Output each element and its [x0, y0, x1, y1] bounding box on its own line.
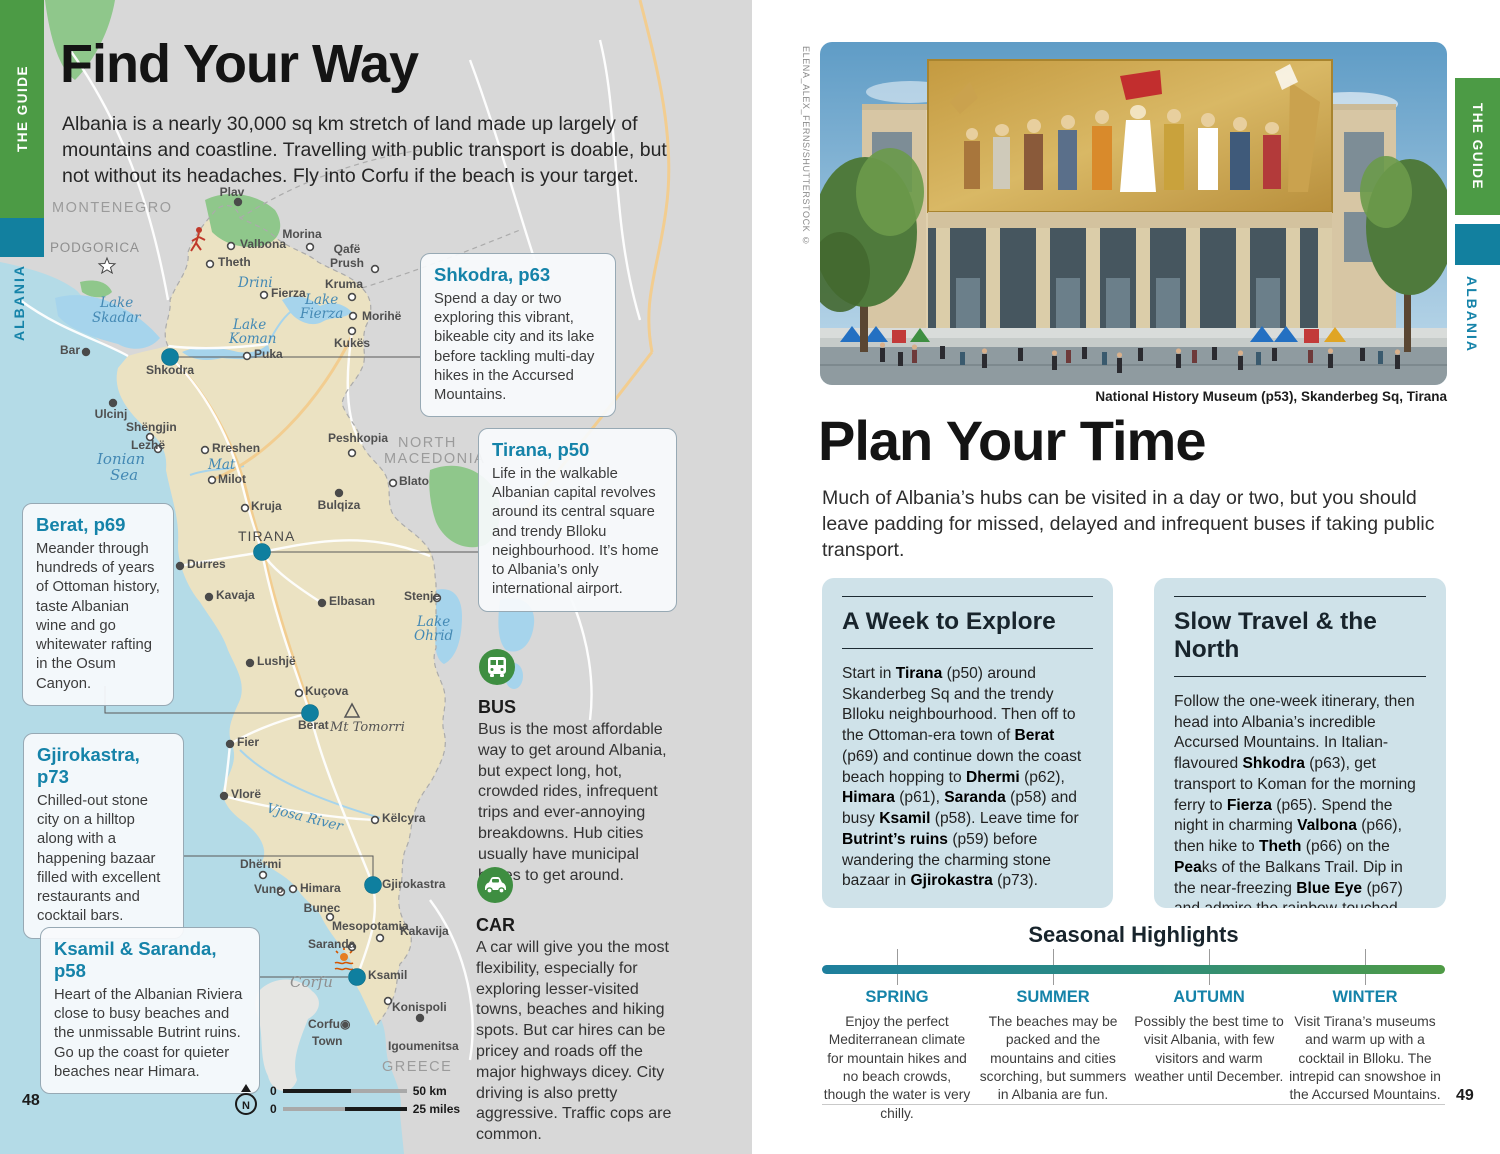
footer-rule [822, 1104, 1445, 1105]
callout-berat: Berat, p69 Meander through hundreds of y… [22, 503, 174, 706]
city-dot [220, 792, 228, 800]
page-title-left: Find Your Way [60, 33, 418, 95]
map-label: Town [312, 1034, 342, 1048]
plan-box-title: Slow Travel & the North [1174, 608, 1426, 664]
guidebook-spread: MONTENEGROPODGORICANORTHMACEDONIAGREECET… [0, 0, 1500, 1154]
season-winter: WINTER Visit Tirana’s museums and warm u… [1289, 988, 1441, 1105]
map-label: Elbasan [329, 594, 375, 608]
callout-title: Tirana, p50 [492, 439, 663, 461]
town-ring [207, 261, 214, 268]
map-label: Milot [218, 472, 246, 486]
map-label: Puka [254, 347, 283, 361]
town-ring [290, 886, 297, 893]
map-label: Qafë [334, 242, 361, 256]
city-dot [109, 399, 117, 407]
town-ring [261, 292, 268, 299]
map-label: GREECE [382, 1059, 452, 1075]
map-label: Igoumenitsa [388, 1039, 459, 1053]
map-label: PODGORICA [50, 240, 140, 255]
map-label: Theth [218, 255, 251, 269]
map-label: Kukës [334, 336, 370, 350]
map-label: Kruja [251, 499, 282, 513]
bus-icon [478, 648, 516, 686]
map-label: Kavaja [216, 588, 255, 602]
callout-gjirokastra: Gjirokastra, p73 Chilled-out stone city … [23, 733, 184, 939]
rule [1174, 676, 1426, 677]
map-label: Kakavija [400, 924, 449, 938]
scale-miles-row: 025 miles [270, 1102, 460, 1116]
city-dot [82, 348, 90, 356]
town-ring [390, 480, 397, 487]
map-label: Fier [237, 735, 259, 749]
callout-tirana: Tirana, p50 Life in the walkable Albania… [478, 428, 677, 612]
photo-credit: ELENA_ALEX_FERNS/SHUTTERSTOCK © [801, 46, 815, 296]
map-label: Koman [228, 331, 276, 347]
callout-title: Ksamil & Saranda, p58 [54, 938, 246, 982]
seasonal-highlights-title: Seasonal Highlights [822, 922, 1445, 948]
city-dot [416, 1014, 424, 1022]
town-ring [242, 505, 249, 512]
town-ring [372, 266, 379, 273]
map-label: Dhërmi [240, 857, 281, 871]
left-teal-band [0, 218, 44, 257]
season-autumn: AUTUMN Possibly the best time to visit A… [1133, 988, 1285, 1086]
page-intro-left: Albania is a nearly 30,000 sq km stretch… [62, 112, 696, 190]
callout-title: Shkodra, p63 [434, 264, 602, 286]
callout-title: Berat, p69 [36, 514, 160, 536]
season-spring: SPRING Enjoy the perfect Mediterranean c… [821, 988, 973, 1123]
tab-the-guide-left: THE GUIDE [0, 0, 44, 218]
city-dot-major [365, 877, 382, 894]
map-label: Rreshen [212, 441, 260, 455]
map-label: Vlorë [231, 787, 261, 801]
museum-photo-illustration [820, 42, 1447, 385]
town-ring [377, 935, 384, 942]
map-label: Valbona [240, 237, 286, 251]
map-label: Shkodra [146, 363, 194, 377]
map-label: Kuçova [305, 684, 349, 698]
map-label: MACEDONIA [384, 451, 485, 467]
map-label: Gjirokastra [382, 877, 446, 891]
town-ring [349, 450, 356, 457]
map-scale-bar: N 050 km 025 miles [231, 1083, 460, 1117]
transport-title: CAR [476, 915, 684, 936]
map-label: Lushjë [257, 654, 296, 668]
rule [842, 596, 1093, 597]
callout-body: Chilled-out stone city on a hilltop alon… [37, 792, 170, 927]
car-icon [476, 866, 514, 904]
map-label: Sea [110, 466, 138, 484]
town-ring [209, 477, 216, 484]
city-dot [335, 489, 343, 497]
map-label: Saranda [308, 937, 356, 951]
plan-box-week: A Week to Explore Start in Tirana (p50) … [822, 578, 1113, 908]
transport-car: CAR A car will give you the most flexibi… [476, 866, 684, 1146]
map-label: Ksamil [368, 968, 407, 982]
museum-photo [820, 42, 1447, 385]
map-label: Lake [99, 295, 133, 311]
map-label: Bunec [304, 901, 341, 915]
map-label: Kruma [325, 277, 363, 291]
season-summer: SUMMER The beaches may be packed and the… [977, 988, 1129, 1105]
town-ring [349, 328, 356, 335]
map-label: Mat [207, 457, 236, 473]
map-label: Berat [298, 718, 329, 732]
map-label: TIRANA [238, 528, 295, 544]
map-label: Corfu◉ [308, 1017, 351, 1031]
town-ring [307, 244, 314, 251]
map-label: Konispoli [392, 1000, 447, 1014]
callout-body: Meander through hundreds of years of Ott… [36, 540, 160, 694]
plan-box-title: A Week to Explore [842, 608, 1093, 636]
map-label: Shëngjin [126, 420, 177, 434]
city-dot [246, 659, 254, 667]
page-intro-right: Much of Albania’s hubs can be visited in… [822, 486, 1450, 564]
city-dot [226, 740, 234, 748]
callout-body: Life in the walkable Albanian capital re… [492, 465, 663, 600]
plan-box-body: Follow the one-week itinerary, then head… [1174, 692, 1426, 908]
rule [1174, 596, 1426, 597]
transport-body: Bus is the most affordable way to get ar… [478, 720, 686, 886]
map-label: Bulqiza [318, 498, 361, 512]
right-teal-band [1455, 224, 1500, 265]
tab-albania-right: ALBANIA [1464, 276, 1480, 386]
svg-text:N: N [242, 1100, 250, 1112]
photo-caption: National History Museum (p53), Skanderbe… [820, 389, 1447, 404]
town-ring [349, 294, 356, 301]
callout-ksamil-saranda: Ksamil & Saranda, p58 Heart of the Alban… [40, 927, 260, 1094]
rule [842, 648, 1093, 649]
city-dot-major [349, 969, 366, 986]
map-label: Ulcinj [95, 407, 128, 421]
town-ring [372, 817, 379, 824]
map-label: Morihë [362, 309, 402, 323]
town-ring [228, 243, 235, 250]
city-dot [234, 198, 242, 206]
map-label: Drini [237, 275, 273, 291]
transport-title: BUS [478, 697, 686, 718]
town-ring [296, 690, 303, 697]
city-dot [318, 599, 326, 607]
city-dot-major [254, 544, 271, 561]
callout-shkodra: Shkodra, p63 Spend a day or two explorin… [420, 253, 616, 417]
callout-title: Gjirokastra, p73 [37, 744, 170, 788]
city-dot [176, 562, 184, 570]
map-label: Vuno [254, 882, 284, 896]
season-gradient-bar [822, 965, 1445, 974]
city-dot [205, 593, 213, 601]
transport-bus: BUS Bus is the most affordable way to ge… [478, 648, 686, 886]
map-label: NORTH [398, 435, 457, 451]
town-ring [244, 353, 251, 360]
map-label: Blato [399, 474, 429, 488]
plan-box-body: Start in Tirana (p50) around Skanderbeg … [842, 664, 1093, 892]
town-ring [260, 872, 267, 879]
page-number-left: 48 [22, 1092, 40, 1110]
map-label: Corfu [290, 973, 333, 991]
map-label: Prush [330, 256, 364, 270]
map-label: Peshkopia [328, 431, 388, 445]
map-label: Durres [187, 557, 226, 571]
map-label: Mt Tomorri [329, 720, 405, 735]
map-label: Skadar [92, 310, 142, 326]
map-label: Morina [282, 227, 322, 241]
map-label: Himara [300, 881, 341, 895]
compass-icon: N [231, 1083, 261, 1117]
map-label: Mesopotamia [332, 919, 409, 933]
map-label: Fierza [299, 306, 343, 322]
map-label: MONTENEGRO [52, 200, 173, 216]
page-number-right: 49 [1456, 1087, 1474, 1105]
town-ring [350, 313, 357, 320]
town-ring [385, 998, 392, 1005]
tab-the-guide-right: THE GUIDE [1455, 78, 1500, 215]
map-label: Bar [60, 343, 80, 357]
scale-km-row: 050 km [270, 1084, 460, 1098]
map-label: Fierza [271, 286, 306, 300]
transport-body: A car will give you the most flexibility… [476, 938, 684, 1146]
map-label: Këlcyra [382, 811, 426, 825]
tab-albania-left: ALBANIA [11, 264, 27, 374]
map-label: Stenje [404, 589, 440, 603]
town-ring [202, 447, 209, 454]
plan-box-slow-travel: Slow Travel & the North Follow the one-w… [1154, 578, 1446, 908]
callout-body: Heart of the Albanian Riviera close to b… [54, 986, 246, 1082]
callout-body: Spend a day or two exploring this vibran… [434, 290, 602, 405]
page-title-right: Plan Your Time [818, 408, 1205, 473]
map-label: Ohrid [414, 628, 454, 644]
